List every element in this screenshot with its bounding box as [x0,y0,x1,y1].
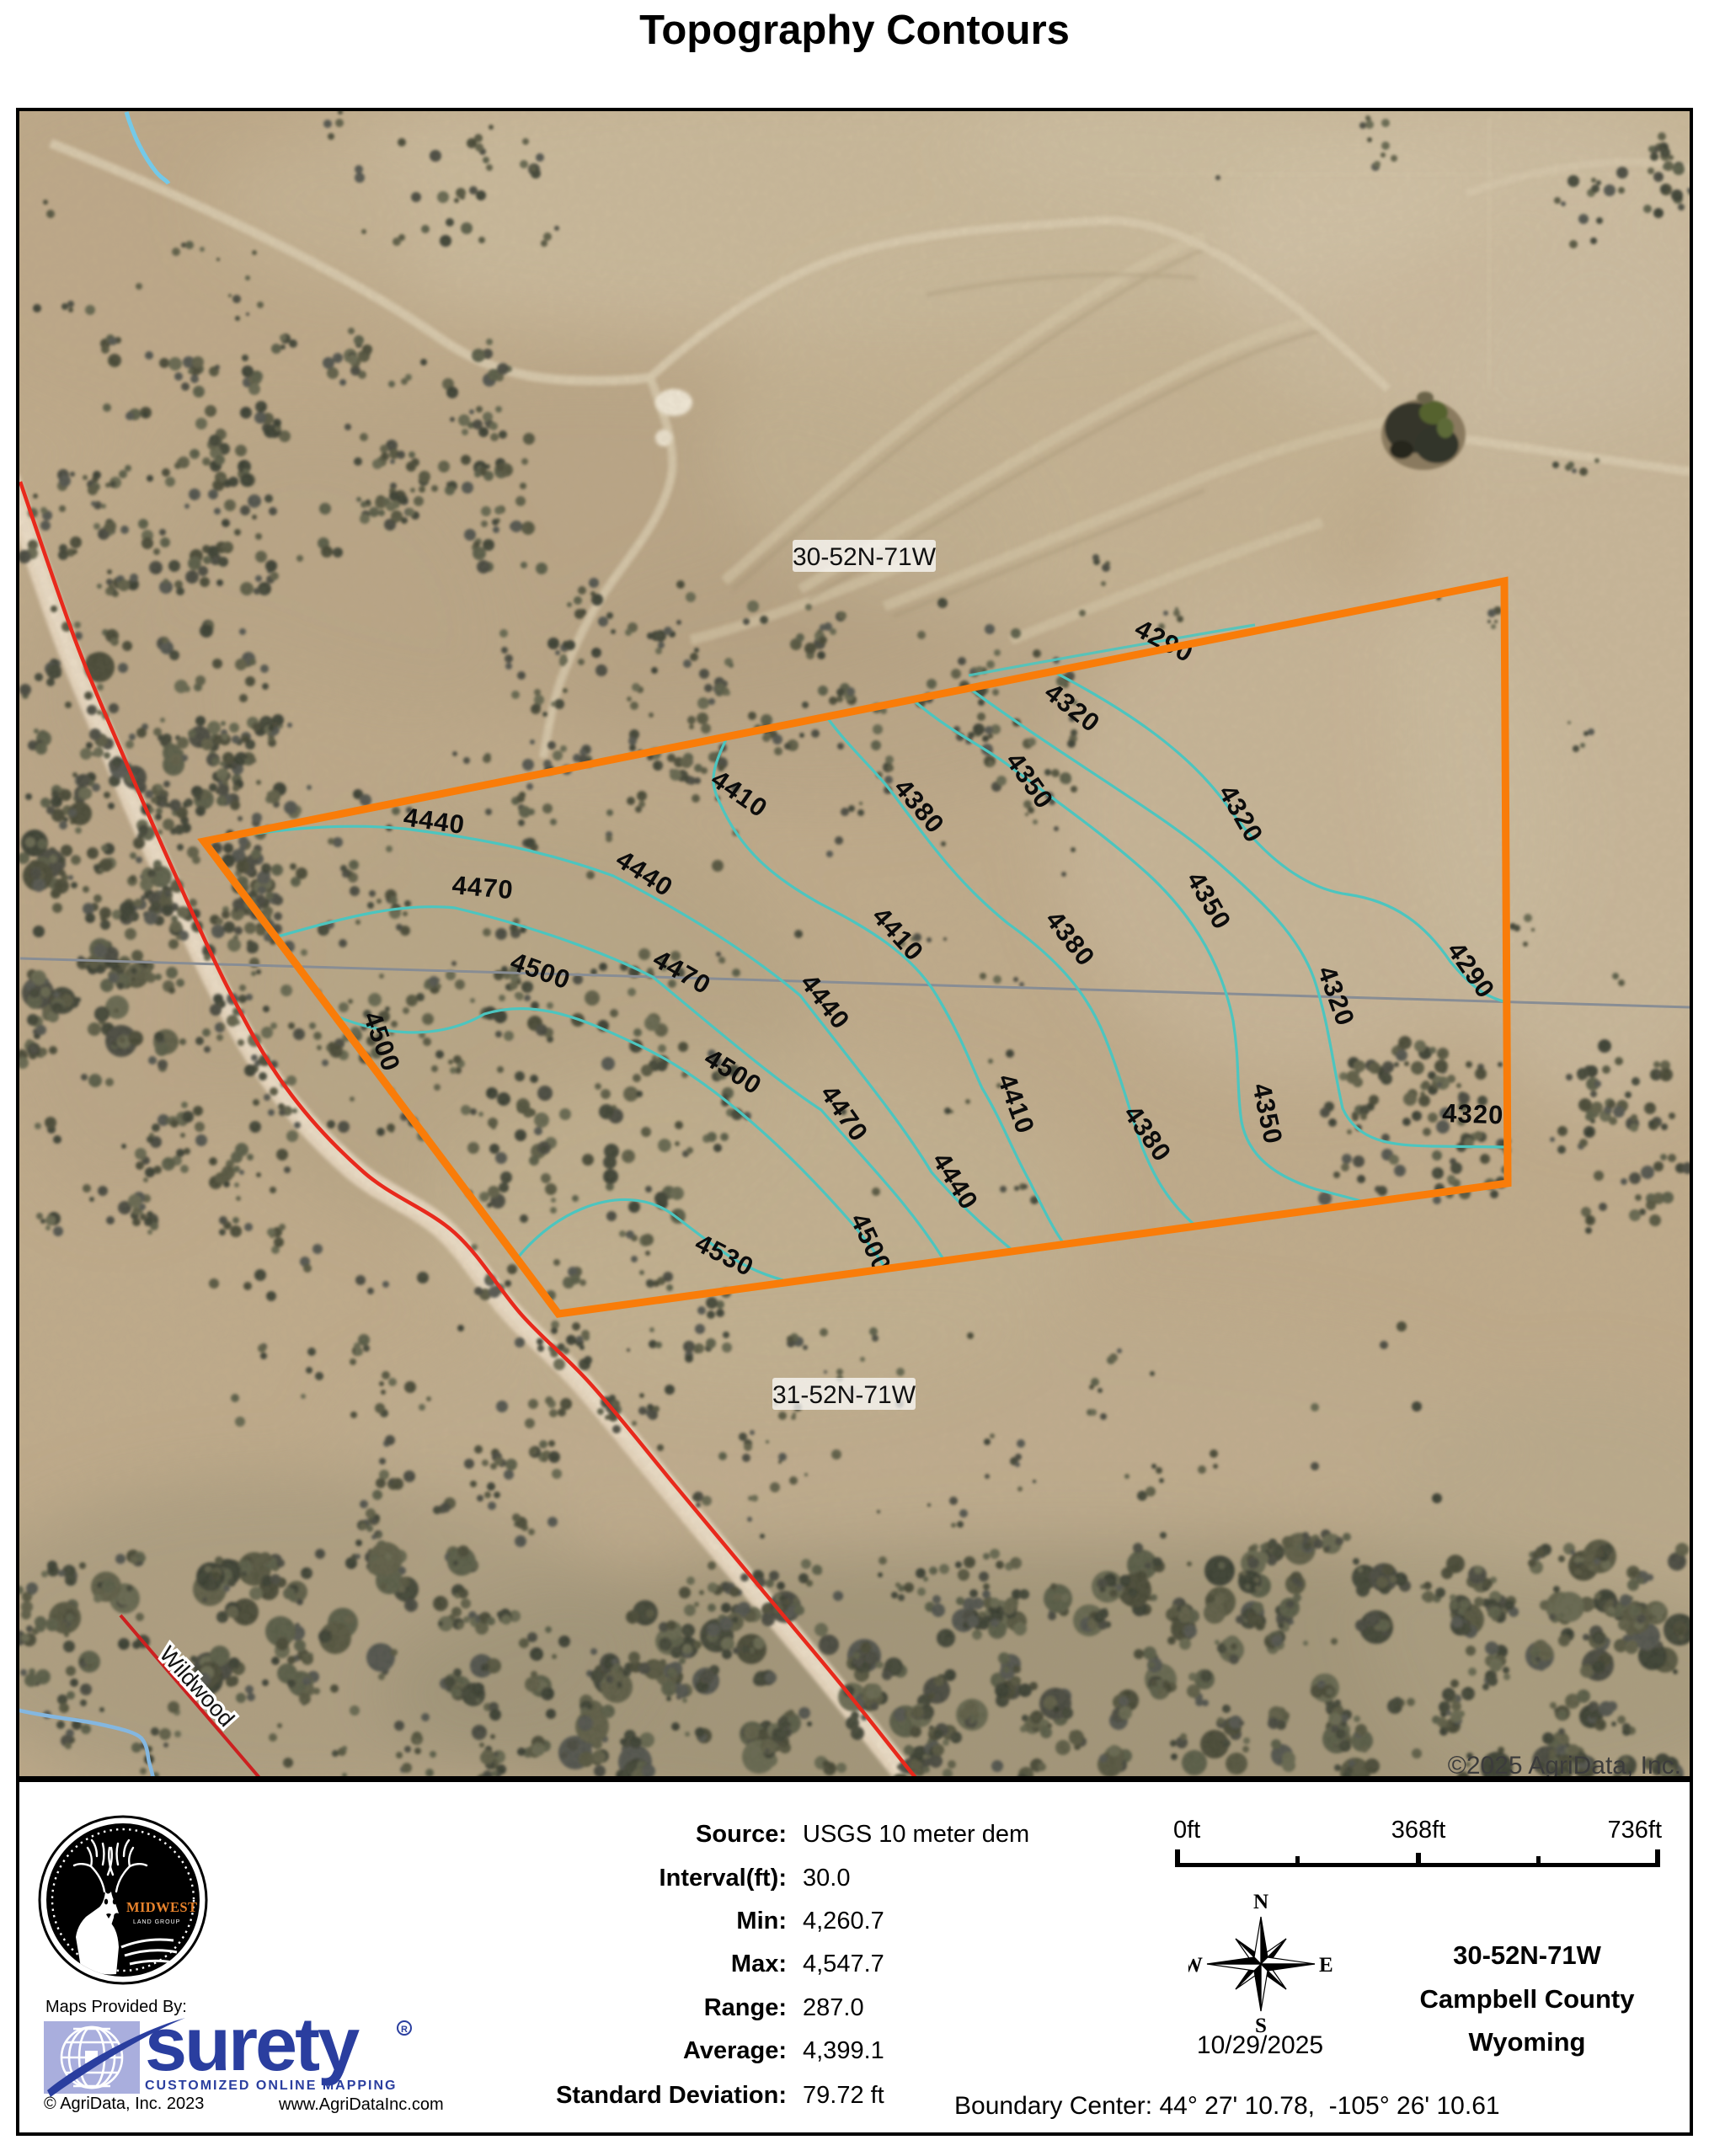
svg-text:R: R [401,2025,408,2035]
svg-text:368ft: 368ft [1391,1817,1446,1844]
svg-text:surety: surety [145,2016,360,2087]
svg-text:E: E [1319,1954,1333,1977]
svg-text:W: W [1188,1954,1203,1977]
svg-text:30-52N-71W: 30-52N-71W [793,543,937,571]
svg-text:MIDWEST: MIDWEST [126,1899,197,1915]
svg-text:LAND GROUP: LAND GROUP [133,1919,180,1925]
svg-text:0ft: 0ft [1173,1817,1200,1844]
svg-text:4320: 4320 [1442,1098,1504,1130]
svg-text:N: N [1253,1891,1268,1913]
svg-text:4470: 4470 [451,870,515,905]
svg-text:CUSTOMIZED ONLINE MAPPING: CUSTOMIZED ONLINE MAPPING [145,2079,398,2093]
svg-text:©2025 AgriData, Inc.: ©2025 AgriData, Inc. [1448,1752,1681,1776]
svg-text:31-52N-71W: 31-52N-71W [772,1381,916,1409]
svg-text:736ft: 736ft [1608,1817,1663,1844]
